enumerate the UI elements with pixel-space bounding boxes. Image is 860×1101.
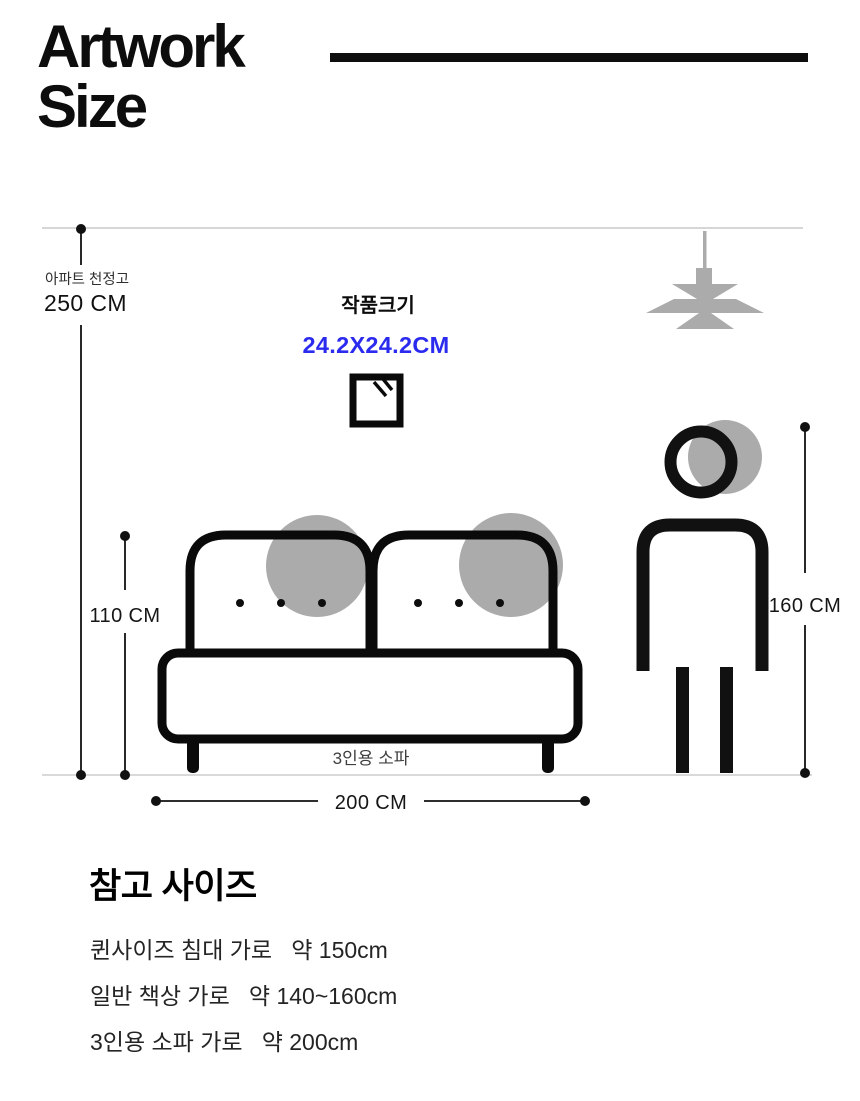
person-icon xyxy=(643,420,762,773)
sofa-icon xyxy=(162,513,578,773)
artwork-size-infographic: Artwork Size 아파트 천정고 250 CM 작품크기 24.2X24… xyxy=(0,0,860,1101)
title-line1: Artwork xyxy=(37,17,243,77)
sofa-label: 3인용 소파 xyxy=(333,749,410,768)
sofa-height-value: 110 CM xyxy=(90,605,161,627)
sofa-width-value: 200 CM xyxy=(335,792,407,814)
artwork-size-label: 작품크기 xyxy=(341,294,415,317)
title-line2: Size xyxy=(37,77,243,137)
reference-item-queen-bed: 퀸사이즈 침대 가로 약 150cm xyxy=(90,931,388,965)
reference-item-desk: 일반 책상 가로 약 140~160cm xyxy=(90,977,397,1011)
sofa-gray-circle-right xyxy=(459,513,563,617)
person-height-value: 160 CM xyxy=(769,595,841,617)
ceiling-label: 아파트 천정고 xyxy=(45,271,129,288)
framed-artwork-icon xyxy=(353,377,400,424)
size-comparison-diagram: 아파트 천정고 250 CM 작품크기 24.2X24.2CM xyxy=(0,215,860,835)
page-title: Artwork Size xyxy=(37,17,243,137)
sofa-height-measure xyxy=(120,531,130,780)
ceiling-height-value: 250 CM xyxy=(44,290,127,316)
artwork-size-value: 24.2X24.2CM xyxy=(303,332,450,358)
reference-heading: 참고 사이즈 xyxy=(89,858,257,909)
reference-item-sofa: 3인용 소파 가로 약 200cm xyxy=(90,1023,358,1057)
title-divider-line xyxy=(330,53,808,62)
pendant-lamp-icon xyxy=(646,231,764,329)
